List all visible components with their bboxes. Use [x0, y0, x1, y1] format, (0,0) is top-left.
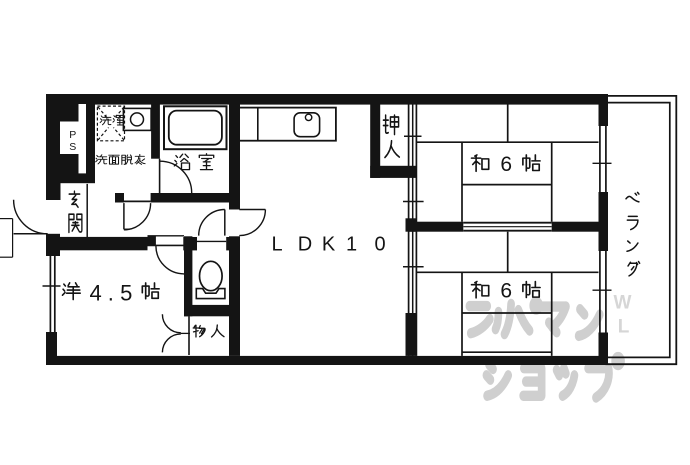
svg-text:4: 4 — [89, 281, 101, 306]
svg-text:1: 1 — [346, 234, 357, 256]
svg-text:6: 6 — [500, 280, 512, 303]
svg-text:L: L — [618, 317, 630, 338]
svg-text:6: 6 — [500, 153, 512, 176]
svg-text:W: W — [614, 293, 632, 314]
svg-text:K: K — [322, 234, 336, 256]
svg-text:P: P — [69, 129, 76, 141]
svg-text:D: D — [298, 234, 312, 256]
svg-text:S: S — [69, 141, 76, 153]
svg-text:.: . — [108, 281, 114, 306]
svg-text:L: L — [271, 234, 282, 256]
svg-text:5: 5 — [120, 281, 132, 306]
svg-text:0: 0 — [374, 234, 385, 256]
